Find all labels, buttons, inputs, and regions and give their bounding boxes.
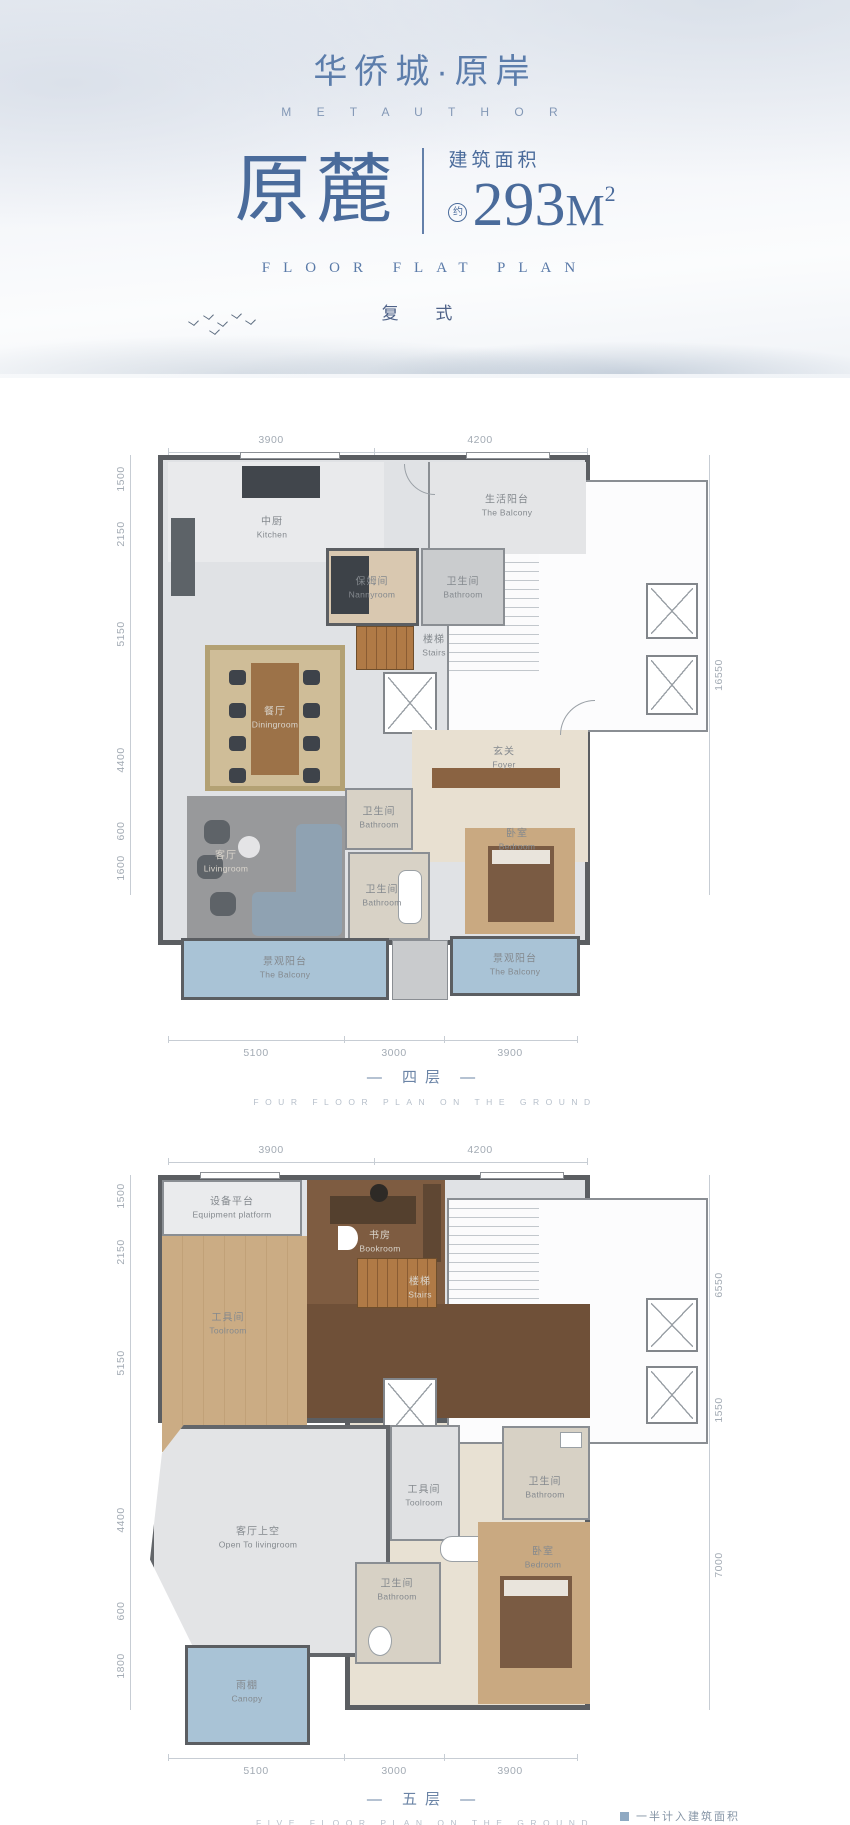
dim-label: 4200 xyxy=(467,434,492,446)
washbasin xyxy=(368,1626,392,1656)
dim-line xyxy=(168,1162,588,1163)
dim-label: 16550 xyxy=(713,659,725,691)
dim-line xyxy=(168,1040,578,1041)
dim-label: 3900 xyxy=(258,434,283,446)
dim-line xyxy=(130,455,131,895)
dim-tick xyxy=(168,1754,169,1761)
dim-line xyxy=(709,455,710,895)
dim-label: 1550 xyxy=(713,1397,725,1422)
dim-label: 4200 xyxy=(467,1144,492,1156)
dim-tick xyxy=(344,1754,345,1761)
dim-tick xyxy=(577,1754,578,1761)
room-label-bath-low: 卫生间Bathroom xyxy=(362,884,401,907)
dim-label: 3900 xyxy=(258,1144,283,1156)
dim-label: 1600 xyxy=(115,855,127,880)
room-label-living: 客厅Livingroom xyxy=(204,850,249,873)
dim-label: 6550 xyxy=(713,1272,725,1297)
washbasin xyxy=(338,1226,358,1250)
elevator-shaft xyxy=(646,583,698,639)
room-label-bath-bottom: 卫生间Bathroom xyxy=(377,1578,416,1601)
room-label-nanny: 保姆间Nannyroom xyxy=(349,576,396,599)
dim-line xyxy=(168,1758,578,1759)
dim-label: 5150 xyxy=(115,621,127,646)
dining-chair xyxy=(303,768,320,783)
area-block: 建筑面积 约 293 M 2 xyxy=(448,145,615,236)
dim-line xyxy=(709,1175,710,1710)
room-label-study: 书房Bookroom xyxy=(359,1230,400,1253)
dim-tick xyxy=(444,1754,445,1761)
dim-label: 1500 xyxy=(115,1183,127,1208)
approx-circle-icon: 约 xyxy=(448,203,467,222)
dining-chair xyxy=(303,736,320,751)
room-label-dining: 餐厅Diningroom xyxy=(252,706,298,729)
dining-chair xyxy=(229,703,246,718)
room-label-balcony-right: 景观阳台The Balcony xyxy=(490,953,541,976)
dim-line xyxy=(130,1175,131,1710)
dim-label: 3900 xyxy=(497,1765,522,1777)
title-divider xyxy=(422,148,424,234)
room-label-stairs: 楼梯Stairs xyxy=(422,634,446,657)
area-value: 293 xyxy=(472,174,565,236)
foyer-console xyxy=(432,768,560,788)
room-toolroom-left xyxy=(162,1236,307,1452)
dim-label: 7000 xyxy=(713,1552,725,1577)
dim-label: 5150 xyxy=(115,1350,127,1375)
room-label-bath-right: 卫生间Bathroom xyxy=(525,1476,564,1499)
room-label-equipment: 设备平台Equipment platform xyxy=(192,1196,271,1219)
room-label-life-balcony: 生活阳台The Balcony xyxy=(482,494,533,517)
dim-tick xyxy=(168,1158,169,1165)
room-label-kitchen: 中厨Kitchen xyxy=(257,516,287,539)
dim-label: 2150 xyxy=(115,521,127,546)
room-label-toolroom-left: 工具间Toolroom xyxy=(209,1312,246,1335)
room-label-foyer: 玄关Foyer xyxy=(492,746,515,769)
dining-chair xyxy=(229,670,246,685)
interior-stairs xyxy=(356,626,414,670)
bed-pillows xyxy=(504,1580,568,1596)
room-label-bath-top: 卫生间Bathroom xyxy=(443,576,482,599)
unit-title: 原麓 xyxy=(234,153,398,229)
dim-tick xyxy=(344,1036,345,1043)
elevator-shaft xyxy=(646,655,698,715)
dining-chair xyxy=(229,768,246,783)
kitchen-appliances xyxy=(171,518,195,596)
dim-tick xyxy=(444,1036,445,1043)
dim-label: 1500 xyxy=(115,466,127,491)
brand-logo-latin: M E T A U T H O R xyxy=(0,105,850,119)
roof-piece xyxy=(392,940,448,1000)
dim-label: 600 xyxy=(115,1601,127,1620)
area-unit: M xyxy=(565,185,604,236)
elevator-shaft xyxy=(646,1366,698,1424)
brand-logo: 华侨城·原岸 xyxy=(0,0,850,93)
header-banner: 华侨城·原岸 M E T A U T H O R 原麓 建筑面积 约 293 M… xyxy=(0,0,850,378)
room-label-bath-mid: 卫生间Bathroom xyxy=(359,806,398,829)
dim-label: 600 xyxy=(115,821,127,840)
floor4-caption: — 四层 — xyxy=(0,1066,850,1087)
room-label-canopy: 雨棚Canopy xyxy=(231,1680,262,1703)
floor5-caption: — 五层 — xyxy=(0,1788,850,1809)
area-label: 建筑面积 xyxy=(448,145,615,172)
dim-label: 2150 xyxy=(115,1239,127,1264)
room-label-stairs5: 楼梯Stairs xyxy=(408,1276,432,1299)
dim-label: 4400 xyxy=(115,747,127,772)
dim-tick xyxy=(374,1158,375,1165)
toilet xyxy=(560,1432,582,1448)
window xyxy=(466,452,550,459)
desk-chair xyxy=(370,1184,388,1202)
kitchen-counter xyxy=(242,466,320,498)
room-bath-bottom xyxy=(355,1562,441,1664)
dim-tick xyxy=(587,448,588,455)
room-toolroom-mid xyxy=(390,1425,460,1541)
tagline: FLOOR FLAT PLAN xyxy=(0,260,850,277)
room-label-bedroom: 卧室Bedroom xyxy=(499,828,536,851)
window xyxy=(240,452,340,459)
dining-chair xyxy=(303,670,320,685)
elevator-shaft xyxy=(646,1298,698,1352)
title-row: 原麓 建筑面积 约 293 M 2 xyxy=(234,145,615,236)
window xyxy=(200,1172,280,1179)
room-label-open-void: 客厅上空Open To livingroom xyxy=(219,1526,297,1549)
armchair xyxy=(204,820,230,844)
area-line: 约 293 M 2 xyxy=(448,174,615,236)
dim-label: 3000 xyxy=(381,1765,406,1777)
legend-text: 一半计入建筑面积 xyxy=(636,1808,740,1824)
dim-label: 1800 xyxy=(115,1653,127,1678)
corridor-floor xyxy=(307,1304,590,1418)
area-exponent: 2 xyxy=(605,181,616,207)
mountains-decor xyxy=(0,318,850,374)
window xyxy=(480,1172,564,1179)
dining-chair xyxy=(303,703,320,718)
poster-page: 华侨城·原岸 M E T A U T H O R 原麓 建筑面积 约 293 M… xyxy=(0,0,850,1825)
dim-tick xyxy=(168,448,169,455)
armchair xyxy=(210,892,236,916)
dim-tick xyxy=(374,448,375,455)
room-label-bedroom5: 卧室Bedroom xyxy=(525,1546,562,1569)
dim-label: 3000 xyxy=(381,1047,406,1059)
floor4-plan: 3900 4200 1500 2150 5150 4400 600 1600 1… xyxy=(0,400,850,1110)
wardrobe xyxy=(423,1184,441,1262)
dim-tick xyxy=(587,1158,588,1165)
room-label-toolroom-mid: 工具间Toolroom xyxy=(405,1484,442,1507)
floor4-caption-en: FOUR FLOOR PLAN ON THE GROUND xyxy=(0,1092,850,1110)
dining-chair xyxy=(229,736,246,751)
legend-square-icon xyxy=(620,1812,629,1821)
footnote-legend: 一半计入建筑面积 xyxy=(620,1808,740,1824)
room-label-balcony-left: 景观阳台The Balcony xyxy=(260,956,311,979)
dim-label: 3900 xyxy=(497,1047,522,1059)
dim-label: 4400 xyxy=(115,1507,127,1532)
bed-pillows xyxy=(492,850,550,864)
dim-label: 5100 xyxy=(243,1765,268,1777)
sofa xyxy=(252,892,342,936)
floor5-plan: 3900 4200 1500 2150 5150 4400 600 1800 6… xyxy=(0,1110,850,1825)
dim-label: 5100 xyxy=(243,1047,268,1059)
elevator-shaft xyxy=(383,672,437,734)
dim-tick xyxy=(577,1036,578,1043)
dim-tick xyxy=(168,1036,169,1043)
